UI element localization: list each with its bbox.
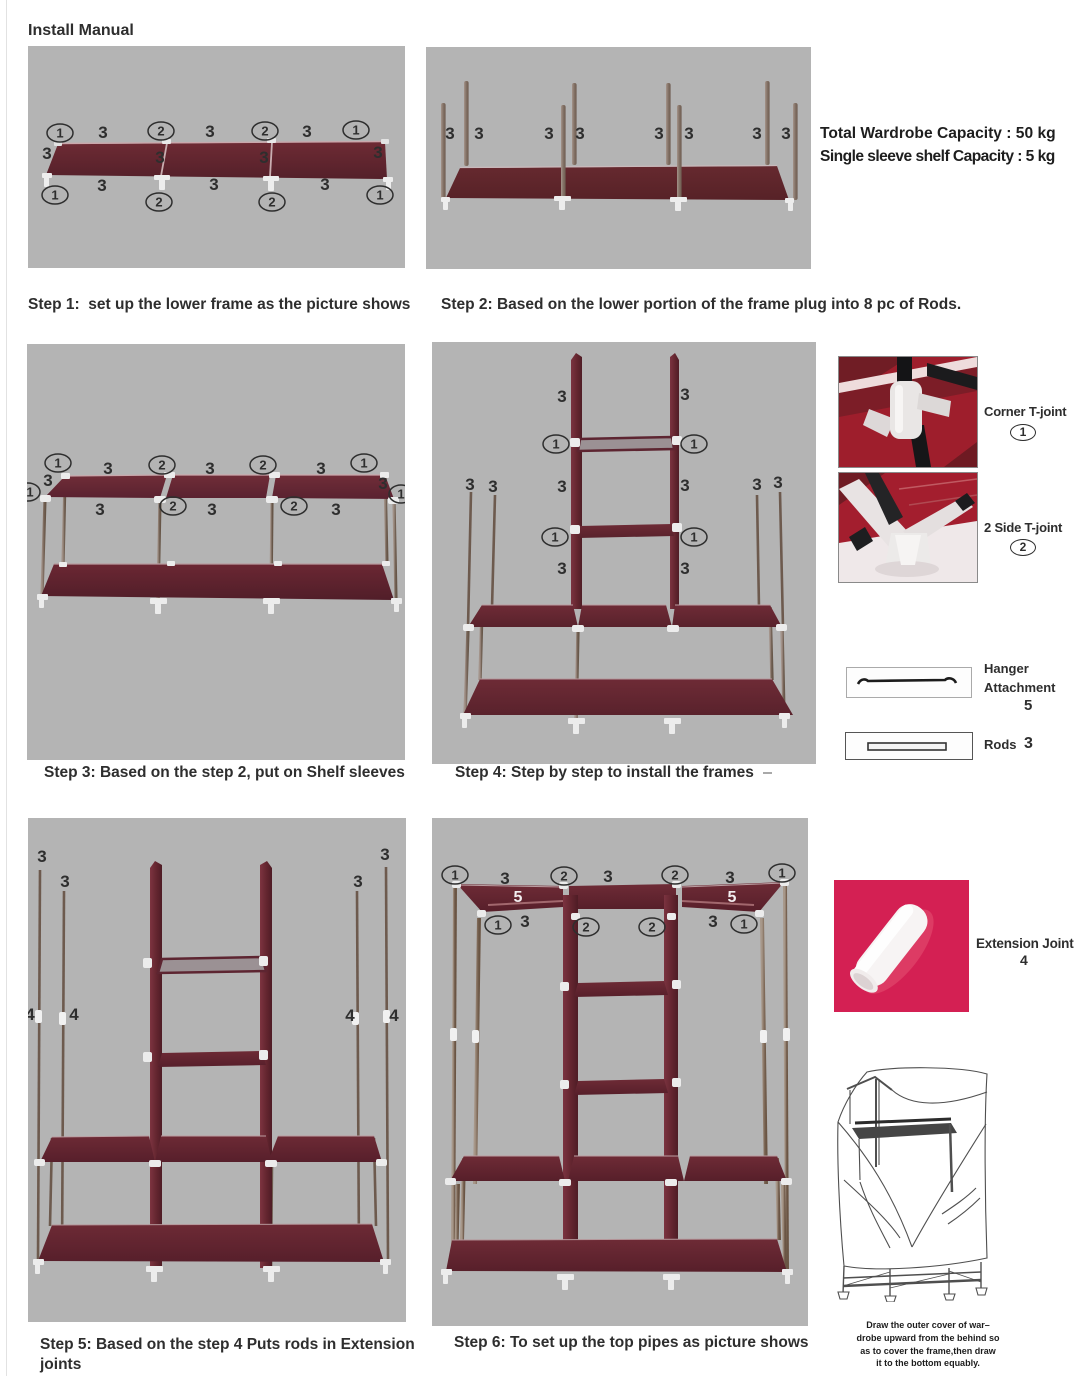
svg-text:1: 1 (551, 530, 558, 545)
svg-text:3: 3 (752, 124, 761, 143)
svg-text:3: 3 (752, 475, 761, 494)
svg-text:4: 4 (28, 1005, 35, 1024)
svg-text:4: 4 (345, 1006, 355, 1025)
svg-text:3: 3 (95, 500, 104, 519)
svg-text:3: 3 (544, 124, 553, 143)
svg-text:3: 3 (373, 143, 382, 162)
svg-text:3: 3 (520, 912, 529, 931)
svg-text:2: 2 (169, 499, 176, 514)
svg-text:3: 3 (43, 471, 52, 490)
svg-text:2: 2 (671, 868, 678, 883)
svg-text:3: 3 (98, 123, 107, 142)
svg-text:1: 1 (740, 917, 747, 932)
svg-text:3: 3 (207, 500, 216, 519)
svg-text:3: 3 (500, 869, 509, 888)
svg-text:3: 3 (680, 559, 689, 578)
svg-text:3: 3 (708, 912, 717, 931)
svg-text:1: 1 (27, 485, 34, 500)
svg-text:3: 3 (684, 124, 693, 143)
svg-text:3: 3 (557, 387, 566, 406)
svg-text:3: 3 (557, 477, 566, 496)
svg-text:2: 2 (158, 458, 165, 473)
svg-text:3: 3 (209, 175, 218, 194)
svg-text:3: 3 (680, 385, 689, 404)
svg-text:3: 3 (557, 559, 566, 578)
svg-text:2: 2 (268, 195, 275, 210)
svg-text:2: 2 (157, 124, 164, 139)
svg-text:3: 3 (103, 459, 112, 478)
svg-text:1: 1 (690, 530, 697, 545)
svg-text:1: 1 (397, 487, 404, 502)
svg-text:1: 1 (690, 437, 697, 452)
svg-text:1: 1 (352, 123, 359, 138)
svg-text:3: 3 (205, 122, 214, 141)
svg-text:3: 3 (259, 148, 268, 167)
svg-text:3: 3 (725, 868, 734, 887)
svg-text:3: 3 (155, 148, 164, 167)
svg-text:3: 3 (773, 473, 782, 492)
svg-text:2: 2 (582, 920, 589, 935)
svg-text:3: 3 (680, 476, 689, 495)
svg-text:1: 1 (376, 188, 383, 203)
svg-text:3: 3 (42, 144, 51, 163)
svg-text:1: 1 (552, 437, 559, 452)
svg-text:3: 3 (60, 872, 69, 891)
svg-text:3: 3 (378, 474, 387, 493)
svg-text:4: 4 (69, 1005, 79, 1024)
svg-text:1: 1 (56, 126, 63, 141)
svg-text:3: 3 (488, 477, 497, 496)
svg-text:3: 3 (781, 124, 790, 143)
svg-text:2: 2 (261, 124, 268, 139)
svg-text:3: 3 (603, 867, 612, 886)
svg-text:3: 3 (316, 459, 325, 478)
svg-text:1: 1 (54, 456, 61, 471)
svg-text:3: 3 (320, 175, 329, 194)
svg-text:2: 2 (259, 458, 266, 473)
svg-text:3: 3 (37, 847, 46, 866)
svg-text:4: 4 (389, 1006, 399, 1025)
svg-text:3: 3 (445, 124, 454, 143)
svg-text:3: 3 (353, 872, 362, 891)
svg-text:1: 1 (451, 868, 458, 883)
svg-text:2: 2 (560, 869, 567, 884)
svg-text:2: 2 (290, 499, 297, 514)
svg-text:2: 2 (648, 920, 655, 935)
svg-text:2: 2 (155, 195, 162, 210)
svg-text:1: 1 (494, 918, 501, 933)
svg-text:3: 3 (302, 122, 311, 141)
svg-text:3: 3 (331, 500, 340, 519)
svg-text:5: 5 (728, 889, 737, 906)
svg-text:3: 3 (465, 475, 474, 494)
svg-text:1: 1 (360, 456, 367, 471)
svg-text:3: 3 (380, 845, 389, 864)
svg-text:5: 5 (514, 889, 523, 906)
svg-text:3: 3 (575, 124, 584, 143)
svg-text:1: 1 (778, 866, 785, 881)
svg-text:3: 3 (654, 124, 663, 143)
svg-text:3: 3 (205, 459, 214, 478)
svg-text:3: 3 (474, 124, 483, 143)
svg-text:3: 3 (97, 176, 106, 195)
svg-text:1: 1 (51, 188, 58, 203)
